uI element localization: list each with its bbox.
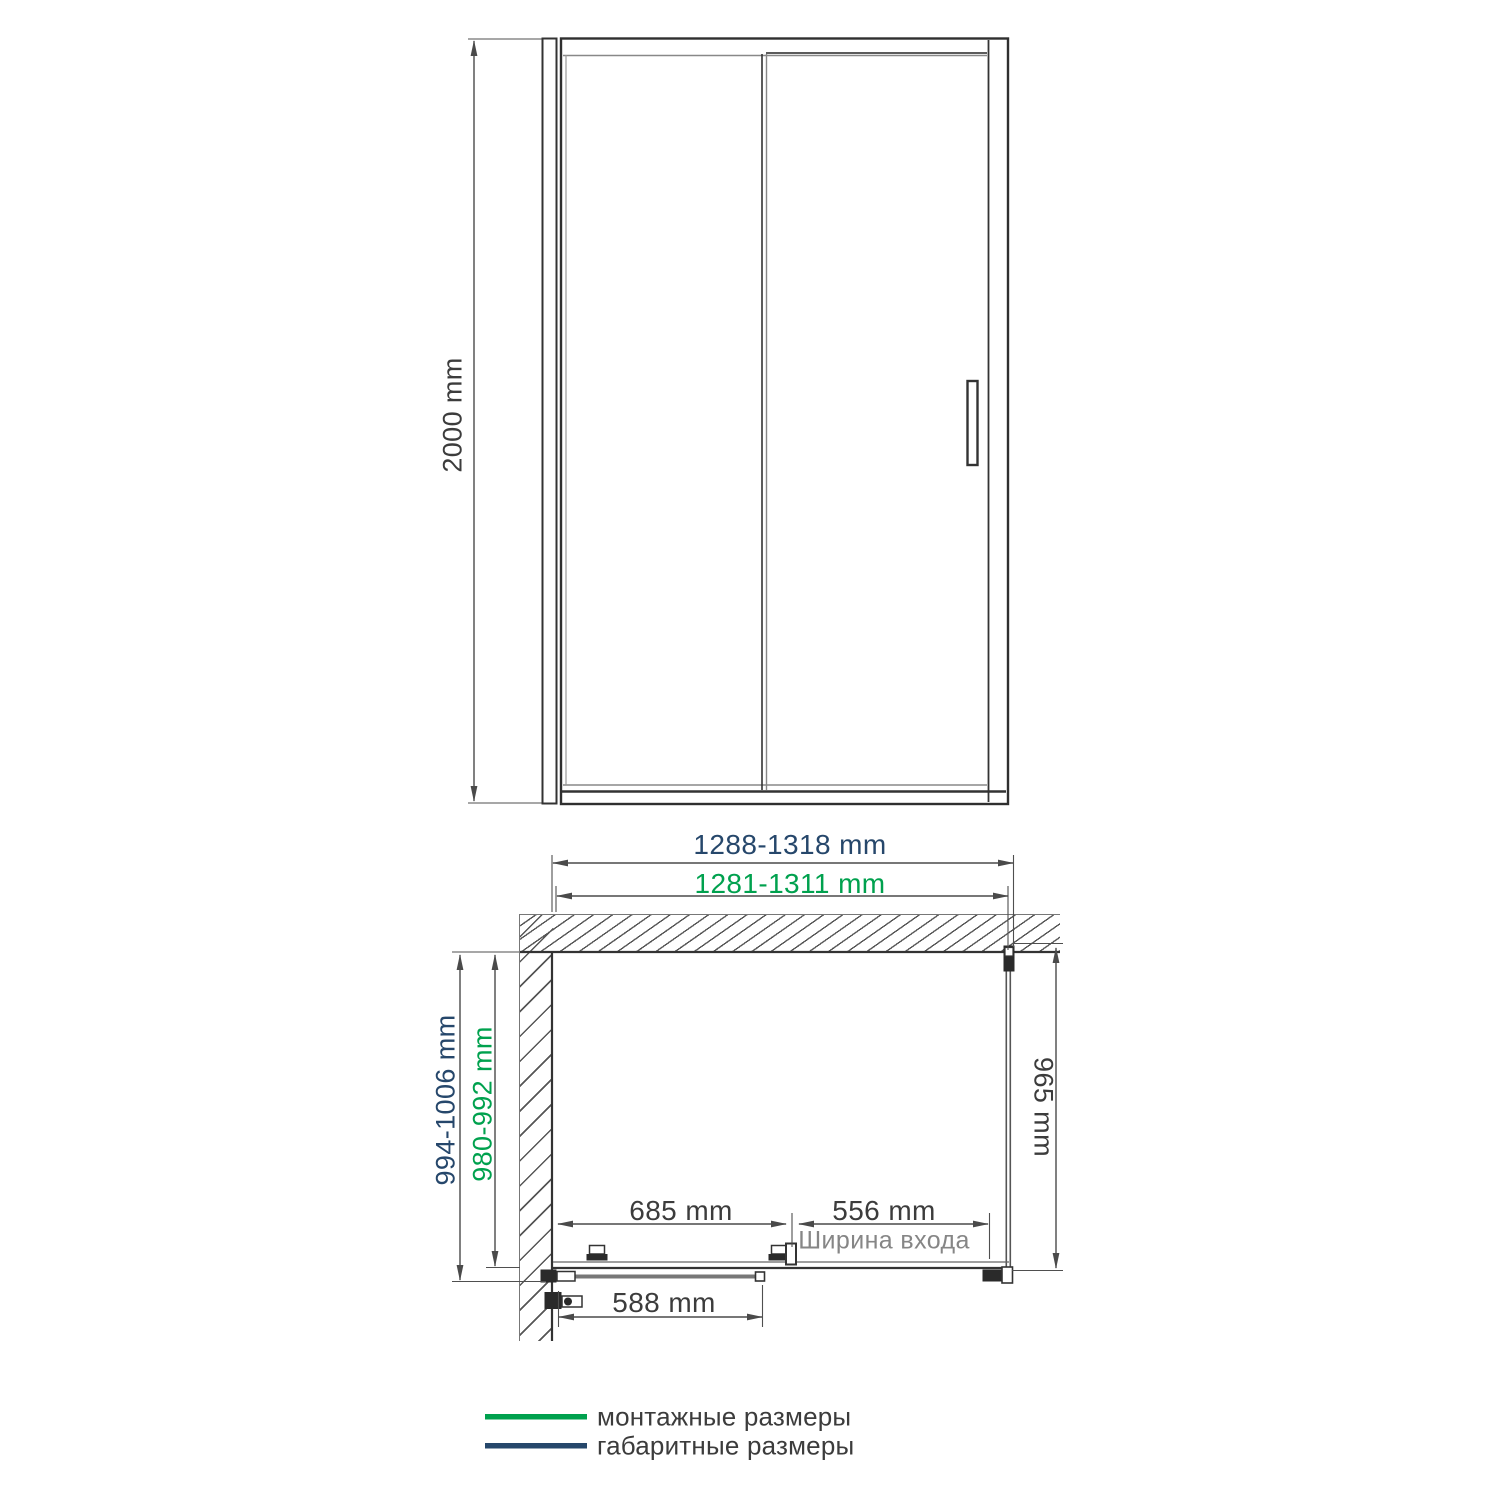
door-glass-width-label: 588 mm	[612, 1287, 716, 1319]
plan-dimensions	[452, 855, 1063, 1327]
entry-width-label: 556 mm	[832, 1195, 936, 1227]
side-panel-depth-label: 965 mm	[1028, 1057, 1059, 1157]
legend-mounting-label: монтажные размеры	[597, 1402, 851, 1433]
roller-left-base	[587, 1254, 608, 1261]
door-section-width-label: 685 mm	[629, 1195, 733, 1227]
entry-width-caption: Ширина входа	[798, 1227, 970, 1256]
shower-enclosure-dimension-drawing: 2000 mm 1288-1318 mm 1281-1311 mm 994-10…	[0, 0, 1500, 1500]
legend-overall-swatch	[485, 1443, 587, 1449]
side-panel-wall-bracket-detail	[1005, 948, 1013, 957]
legend-overall-label: габаритные размеры	[597, 1431, 854, 1462]
mounting-width-label: 1281-1311 mm	[694, 868, 885, 900]
front-height-label: 2000 mm	[438, 357, 469, 472]
legend-mounting-swatch	[485, 1414, 587, 1420]
left-wall-bracket-clamp	[557, 1272, 575, 1282]
corner-connector-clamp	[1002, 1267, 1013, 1283]
bottom-guide-roller	[564, 1298, 572, 1306]
door-handle	[968, 381, 978, 465]
roller-right-wheel	[772, 1246, 787, 1255]
roller-left-wheel	[590, 1246, 605, 1255]
left-wall-bracket	[541, 1270, 557, 1283]
door-edge-stile	[786, 1244, 796, 1265]
overall-width-label: 1288-1318 mm	[693, 829, 886, 861]
roller-left	[587, 1246, 608, 1261]
mounting-depth-label: 980-992 mm	[468, 1026, 499, 1182]
wall-profile-strip	[543, 39, 557, 804]
legend-swatches	[485, 1414, 587, 1449]
front-view	[468, 39, 1008, 805]
door-glass-end-cap	[756, 1272, 765, 1281]
overall-depth-label: 994-1006 mm	[431, 1015, 462, 1186]
door-frame-outline	[561, 39, 1008, 805]
drawing-linework	[0, 0, 1500, 1500]
